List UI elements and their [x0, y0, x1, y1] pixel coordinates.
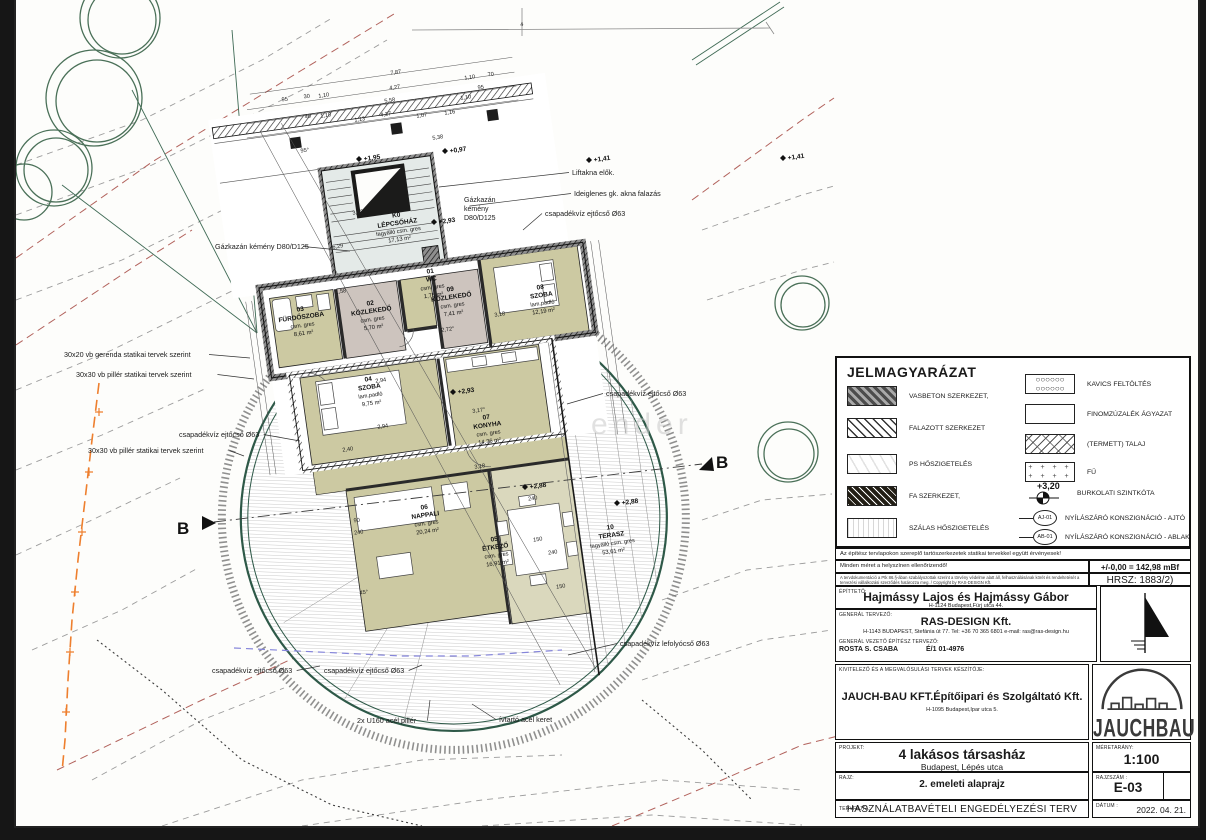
scale-value: 1:100	[1093, 751, 1190, 767]
svg-text:B: B	[177, 519, 189, 538]
number-divider	[1163, 773, 1164, 799]
annotation-label: Ideiglenes gk. akna falazás	[574, 189, 661, 198]
dimension-label: 95	[281, 97, 288, 104]
number-value: E-03	[1093, 780, 1163, 795]
level-symbol-icon: +3,20	[1025, 480, 1065, 506]
north-arrow-icon	[1101, 587, 1189, 659]
door-tag-line	[1019, 518, 1033, 519]
scale-block: MÉRETARÁNY: 1:100	[1092, 742, 1191, 772]
dimension-label: 4,27	[389, 84, 401, 91]
annotation-label: csapadékvíz ejtőcső Ø63	[324, 666, 404, 675]
ps-swatch-icon	[847, 454, 897, 474]
gravel-swatch-icon: ○○○○○○ ○○○○○○	[1025, 374, 1075, 394]
dimension-label: 90	[353, 518, 360, 525]
designer-block: GENERÁL TERVEZŐ: RAS-DESIGN Kft. H-1143 …	[835, 609, 1097, 662]
legend-item-right-3: + + + + + + + +FŰ	[1025, 462, 1096, 482]
annotation-label: csapadékvíz ejtőcső Ø63	[606, 389, 686, 398]
dimension-label: 45°	[359, 589, 368, 596]
room-label-line: 08	[536, 284, 545, 292]
date-value: 2022. 04. 21.	[1136, 805, 1186, 815]
project-address: Budapest, Lépés utca	[836, 762, 1088, 772]
legend-item-label: FA SZERKEZET,	[909, 493, 960, 500]
legend-item-left-4: SZÁLAS HŐSZIGETELÉS	[847, 518, 989, 538]
number-block: RAJZSZÁM : E-03	[1092, 772, 1191, 800]
level-label: +1,41	[593, 155, 611, 164]
logo-box: JAUCHBAU	[1092, 664, 1191, 740]
dimension-label: 1,10	[318, 92, 330, 99]
plain-swatch-icon	[1025, 404, 1075, 424]
level-symbol-icon	[586, 157, 592, 163]
soil-swatch-icon	[1025, 434, 1075, 454]
legend-item-label: PS HŐSZIGETELÉS	[909, 461, 972, 468]
chief-license: É/1 01-4976	[926, 646, 964, 653]
room-label-line: 06	[420, 504, 429, 512]
room-label-line: K0	[392, 212, 402, 220]
project-block: PROJEKT: 4 lakásos társasház Budapest, L…	[835, 742, 1089, 772]
legend-item-right-2: (TERMETT) TALAJ	[1025, 434, 1145, 454]
legend-item-label: FŰ	[1087, 469, 1096, 476]
room-label-line: 01	[426, 268, 435, 276]
designer-address: H-1143 BUDAPEST, Stefánia út 77. Tel: +3…	[836, 629, 1096, 635]
grass-swatch-icon: + + + + + + + +	[1025, 462, 1075, 482]
room-label-line: 04	[364, 376, 373, 384]
room-label-line: 10	[606, 524, 615, 532]
hrsz-cell: HRSZ: 1883/2)	[1089, 573, 1191, 586]
project-name: 4 lakásos társasház	[836, 747, 1088, 762]
legend-item-label: (TERMETT) TALAJ	[1087, 441, 1145, 448]
top-dim-line	[412, 8, 774, 36]
annotation-label: 30x20 vb gerenda statikai tervek szerint	[64, 350, 191, 359]
legend-title: JELMAGYARÁZAT	[847, 364, 976, 380]
room-label-line: 02	[366, 300, 375, 308]
copyright-cell: A tervdokumentáció a Ptk 86.§-ában szabá…	[835, 573, 1089, 586]
contractor-block: KIVITELEZŐ ÉS A MEGVALÓSULÁSI TERVEK KÉS…	[835, 664, 1089, 740]
contractor-name: JAUCH-BAU KFT.Építőipari és Szolgáltató …	[836, 691, 1088, 703]
annotation-label: 2x U160 acél pillér	[357, 716, 417, 725]
legend-item-label: SZÁLAS HŐSZIGETELÉS	[909, 525, 989, 532]
legend-item-left-3: FA SZERKEZET,	[847, 486, 960, 506]
room-label-line: 09	[446, 286, 455, 294]
legend-item-label: VASBETON SZERKEZET,	[909, 393, 988, 400]
level-symbol-icon	[780, 155, 786, 161]
legend-window-row: AB-01 NYÍLÁSZÁRÓ KONSZIGNÁCIÓ - ABLAK	[1019, 529, 1190, 545]
annotation-label: Gázkazán kémény D80/D125	[215, 242, 309, 251]
type-value: HASZNÁLATBAVÉTELI ENGEDÉLYEZÉSI TERV	[836, 804, 1088, 815]
annotation-label: csapadékvíz ejtőcső Ø63	[212, 666, 292, 675]
wood-swatch-icon	[847, 486, 897, 506]
annotation-leader	[209, 355, 250, 359]
jauchbau-logo-icon	[1094, 665, 1190, 713]
annotation-label: Liftakna elők.	[572, 168, 614, 177]
dimension-label: 7,87	[390, 69, 402, 76]
dimension-label: 70	[487, 72, 494, 79]
logo-text: JAUCHBAU	[1093, 713, 1190, 743]
type-block: TERVFAJTA: HASZNÁLATBAVÉTELI ENGEDÉLYEZÉ…	[835, 800, 1089, 818]
contractor-address: H-1095 Budapest,Ipar utca 5.	[836, 707, 1088, 713]
chimney-note-line: D80/D125	[464, 215, 496, 222]
masonry-swatch-icon	[847, 418, 897, 438]
legend-item-label: FINOMZÚZALÉK ÁGYAZAT	[1087, 411, 1172, 418]
dimension-label: 1,10	[464, 74, 476, 81]
dimension-label: 95	[477, 85, 484, 92]
north-arrow-box	[1100, 586, 1191, 662]
chief-name: ROSTA S. CSABA	[839, 646, 898, 653]
room-label-line: 03	[296, 306, 305, 314]
legend-door-label: NYÍLÁSZÁRÓ KONSZIGNÁCIÓ - AJTÓ	[1065, 515, 1185, 522]
dimension-label: 40	[304, 114, 311, 121]
designer-name: RAS-DESIGN Kft.	[836, 616, 1096, 628]
chimney-note-line: kémény	[464, 206, 489, 213]
window-tag-line	[1019, 537, 1033, 538]
legend-door-row: AJ-01 NYÍLÁSZÁRÓ KONSZIGNÁCIÓ - AJTÓ	[1019, 510, 1185, 526]
legend-item-label: KAVICS FELTÖLTÉS	[1087, 381, 1151, 388]
legend-window-label: NYÍLÁSZÁRÓ KONSZIGNÁCIÓ - ABLAK	[1065, 534, 1190, 541]
dimension-label: 30	[303, 94, 310, 101]
drawing-name: 2. emeleti alaprajz	[836, 779, 1088, 790]
annotation-label: 30x30 vb pillér statikai tervek szerint	[76, 370, 191, 379]
client-block: ÉPÍTTETŐ: Hajmássy Lajos és Hajmássy Gáb…	[835, 586, 1097, 609]
svg-text:B: B	[716, 453, 728, 472]
legend-item-right-1: FINOMZÚZALÉK ÁGYAZAT	[1025, 404, 1172, 424]
watermark: ender	[591, 408, 693, 442]
drawing-sheet: B B GázkazánkéményD80/D125 K0LÉPCSŐHÁZfa…	[14, 0, 1200, 828]
legend-level-label: BURKOLATI SZINTKÓTA	[1077, 490, 1155, 497]
dimension-label: 95°	[300, 147, 309, 154]
utility-line-orange	[62, 383, 103, 772]
annotation-label: ívtartó acél keret	[499, 715, 552, 724]
rebar-swatch-icon	[847, 386, 897, 406]
legend-item-label: FALAZOTT SZERKEZET	[909, 425, 985, 432]
legend-level-row: +3,20 BURKOLATI SZINTKÓTA	[1025, 480, 1155, 506]
annotation-label: 30x30 vb pillér statikai tervek szerint	[88, 446, 203, 455]
room-label-line: 05	[490, 536, 499, 544]
level-value-svg: +3,20	[1037, 481, 1060, 491]
annotation-label: csapadékvíz lefolyócső Ø63	[620, 639, 710, 648]
drawing-block: RAJZ: 2. emeleti alaprajz	[835, 772, 1089, 800]
window-tag-icon: AB-01	[1033, 529, 1057, 545]
dimension-label: 4	[520, 22, 524, 28]
note-structural: Az építész tervlapokon szereplő tartósze…	[835, 548, 1191, 560]
fiber-swatch-icon	[847, 518, 897, 538]
note-measure: Minden méret a helyszínen ellenőrizendő!	[835, 560, 1089, 573]
client-name: Hajmássy Lajos és Hajmássy Gábor	[836, 590, 1096, 604]
room-label-line: 07	[482, 414, 491, 422]
date-block: DÁTUM : 2022. 04. 21.	[1092, 800, 1191, 818]
door-tag-icon: AJ-01	[1033, 510, 1057, 526]
datum-cell: +/-0,00 = 142,98 mBf	[1089, 560, 1191, 573]
legend-item-left-0: VASBETON SZERKEZET,	[847, 386, 988, 406]
chimney-note-line: Gázkazán	[464, 197, 496, 204]
legend-item-left-2: PS HŐSZIGETELÉS	[847, 454, 972, 474]
level-label: +1,41	[787, 153, 805, 162]
annotation-label: csapadékvíz ejtőcső Ø63	[179, 430, 259, 439]
legend-panel: JELMAGYARÁZAT VASBETON SZERKEZET,FALAZOT…	[835, 356, 1191, 548]
legend-item-left-1: FALAZOTT SZERKEZET	[847, 418, 985, 438]
legend-item-right-0: ○○○○○○ ○○○○○○KAVICS FELTÖLTÉS	[1025, 374, 1151, 394]
annotation-leader	[217, 375, 254, 380]
annotation-label: csapadékvíz ejtőcső Ø63	[545, 209, 625, 218]
